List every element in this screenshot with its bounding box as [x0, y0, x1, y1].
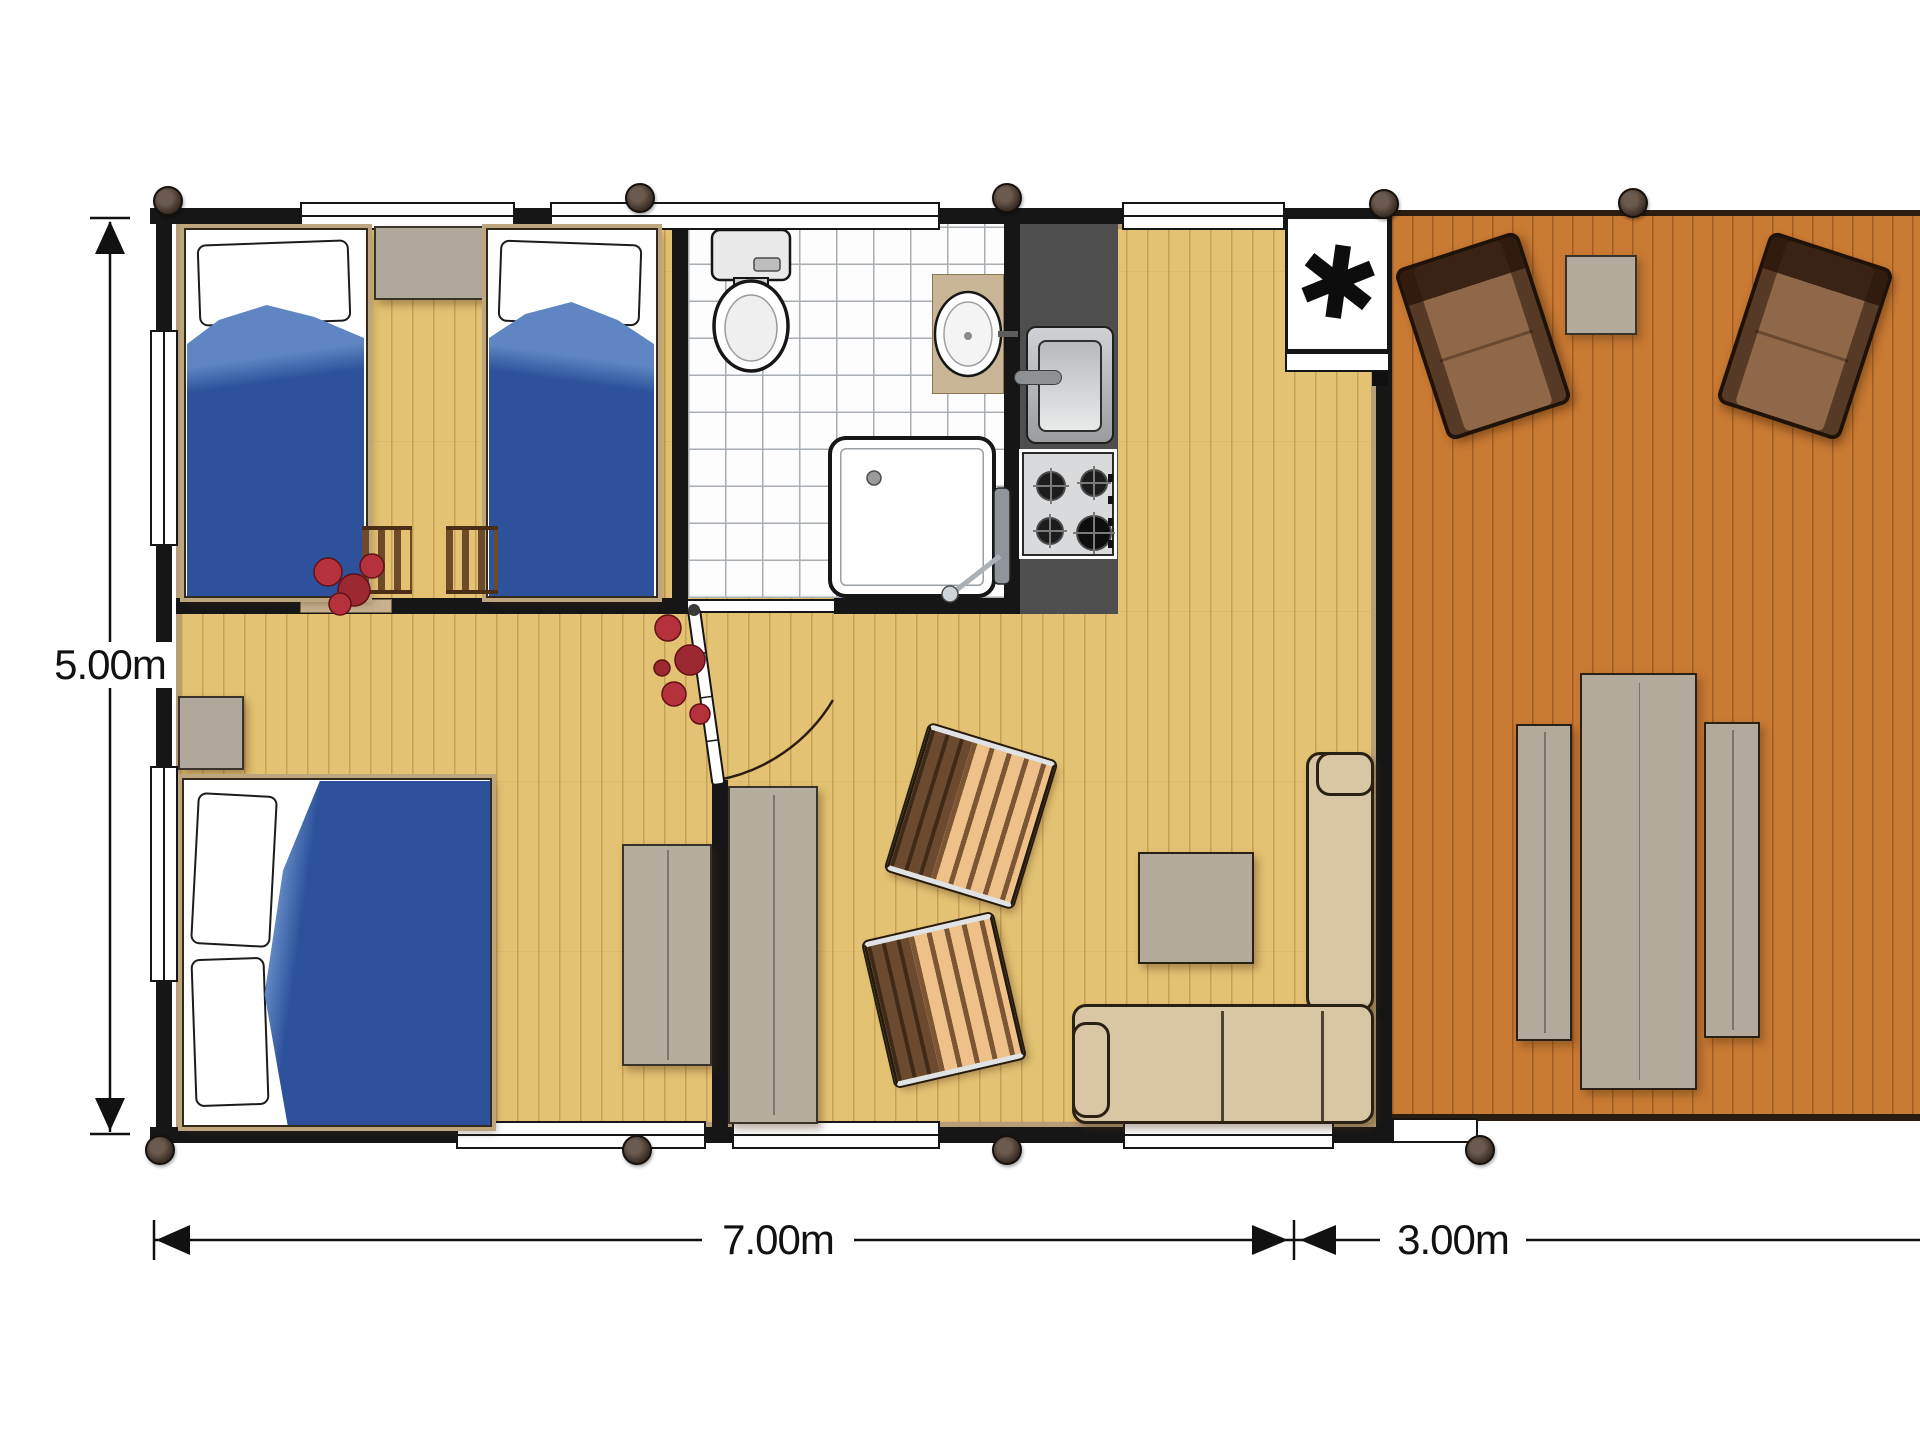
deck-side-table — [1565, 255, 1637, 335]
wall-bedrooms-divider — [176, 598, 688, 614]
water-heater-closet: ✱ — [1285, 216, 1390, 352]
sofa-right-armrest — [1316, 752, 1374, 796]
height-value: 5.00m — [54, 641, 166, 689]
dimension-label-deck-width: 3.00m — [1380, 1217, 1526, 1263]
duvet — [489, 296, 654, 596]
window-left-1 — [150, 330, 178, 546]
water-heater-icon: ✱ — [1289, 229, 1386, 340]
double-bed — [182, 778, 492, 1127]
burner — [1080, 469, 1108, 497]
window-bottom-1 — [456, 1121, 706, 1149]
main-width-value: 7.00m — [722, 1216, 834, 1264]
sofa-cushion-divider — [1321, 1011, 1324, 1123]
pillow — [190, 792, 278, 948]
window-left-2 — [150, 766, 178, 982]
burner — [1036, 471, 1066, 501]
window-top-3 — [1122, 202, 1285, 230]
coffee-table — [1138, 852, 1254, 964]
post — [992, 1135, 1022, 1165]
shower-tray — [828, 436, 996, 598]
kitchen-faucet-icon — [1014, 370, 1062, 385]
window-top-2 — [550, 202, 940, 230]
dimension-label-height: 5.00m — [44, 642, 176, 688]
post — [622, 1135, 652, 1165]
gas-hob — [1022, 452, 1114, 556]
pillow — [190, 957, 269, 1107]
wall-double-bedroom-right — [712, 780, 728, 1127]
sofa-bottom-section — [1072, 1004, 1374, 1124]
sofa-left-armrest — [1072, 1022, 1110, 1118]
wall-bathroom-right — [1004, 224, 1020, 614]
ladder-chair-1 — [362, 526, 412, 594]
bedroom-cabinet — [622, 844, 712, 1066]
floor-plan-canvas: ✱ — [0, 0, 1920, 1440]
deck-step-sill — [1392, 1118, 1478, 1143]
post — [1369, 189, 1399, 219]
window-bottom-3 — [1123, 1121, 1334, 1149]
wardrobe — [728, 786, 818, 1124]
washbasin-mat — [932, 274, 1004, 394]
twin-bedroom-door — [300, 599, 392, 613]
post — [992, 183, 1022, 213]
water-heater-closet-sill — [1285, 352, 1390, 372]
wall-under-shower — [834, 598, 1020, 614]
deck-width-value: 3.00m — [1397, 1216, 1509, 1264]
post — [1618, 188, 1648, 218]
wall-bathroom-left — [672, 224, 688, 614]
twin-nightstand — [374, 226, 484, 300]
bathroom-door-threshold — [688, 599, 834, 613]
double-bedroom-nightstand — [178, 696, 244, 770]
window-bottom-2 — [732, 1121, 940, 1149]
ladder-chair-2 — [446, 526, 498, 594]
duvet — [187, 296, 364, 596]
deck-bench-right — [1704, 722, 1760, 1038]
post — [153, 186, 183, 216]
dimension-label-main-width: 7.00m — [702, 1217, 854, 1263]
water-heater-vent — [1372, 372, 1388, 386]
duvet — [260, 781, 490, 1125]
post — [625, 183, 655, 213]
sofa-cushion-divider — [1221, 1011, 1224, 1123]
deck-bench-left — [1516, 724, 1572, 1041]
deck-dining-table — [1580, 673, 1697, 1090]
post — [145, 1135, 175, 1165]
single-bed-1 — [184, 228, 368, 598]
burner-large — [1076, 515, 1112, 551]
kitchen-sink-basin — [1038, 340, 1102, 432]
single-bed-2 — [486, 228, 658, 598]
post — [1465, 1135, 1495, 1165]
burner — [1036, 517, 1064, 545]
hob-knobs — [1108, 464, 1113, 548]
kitchen-sink — [1026, 326, 1114, 444]
